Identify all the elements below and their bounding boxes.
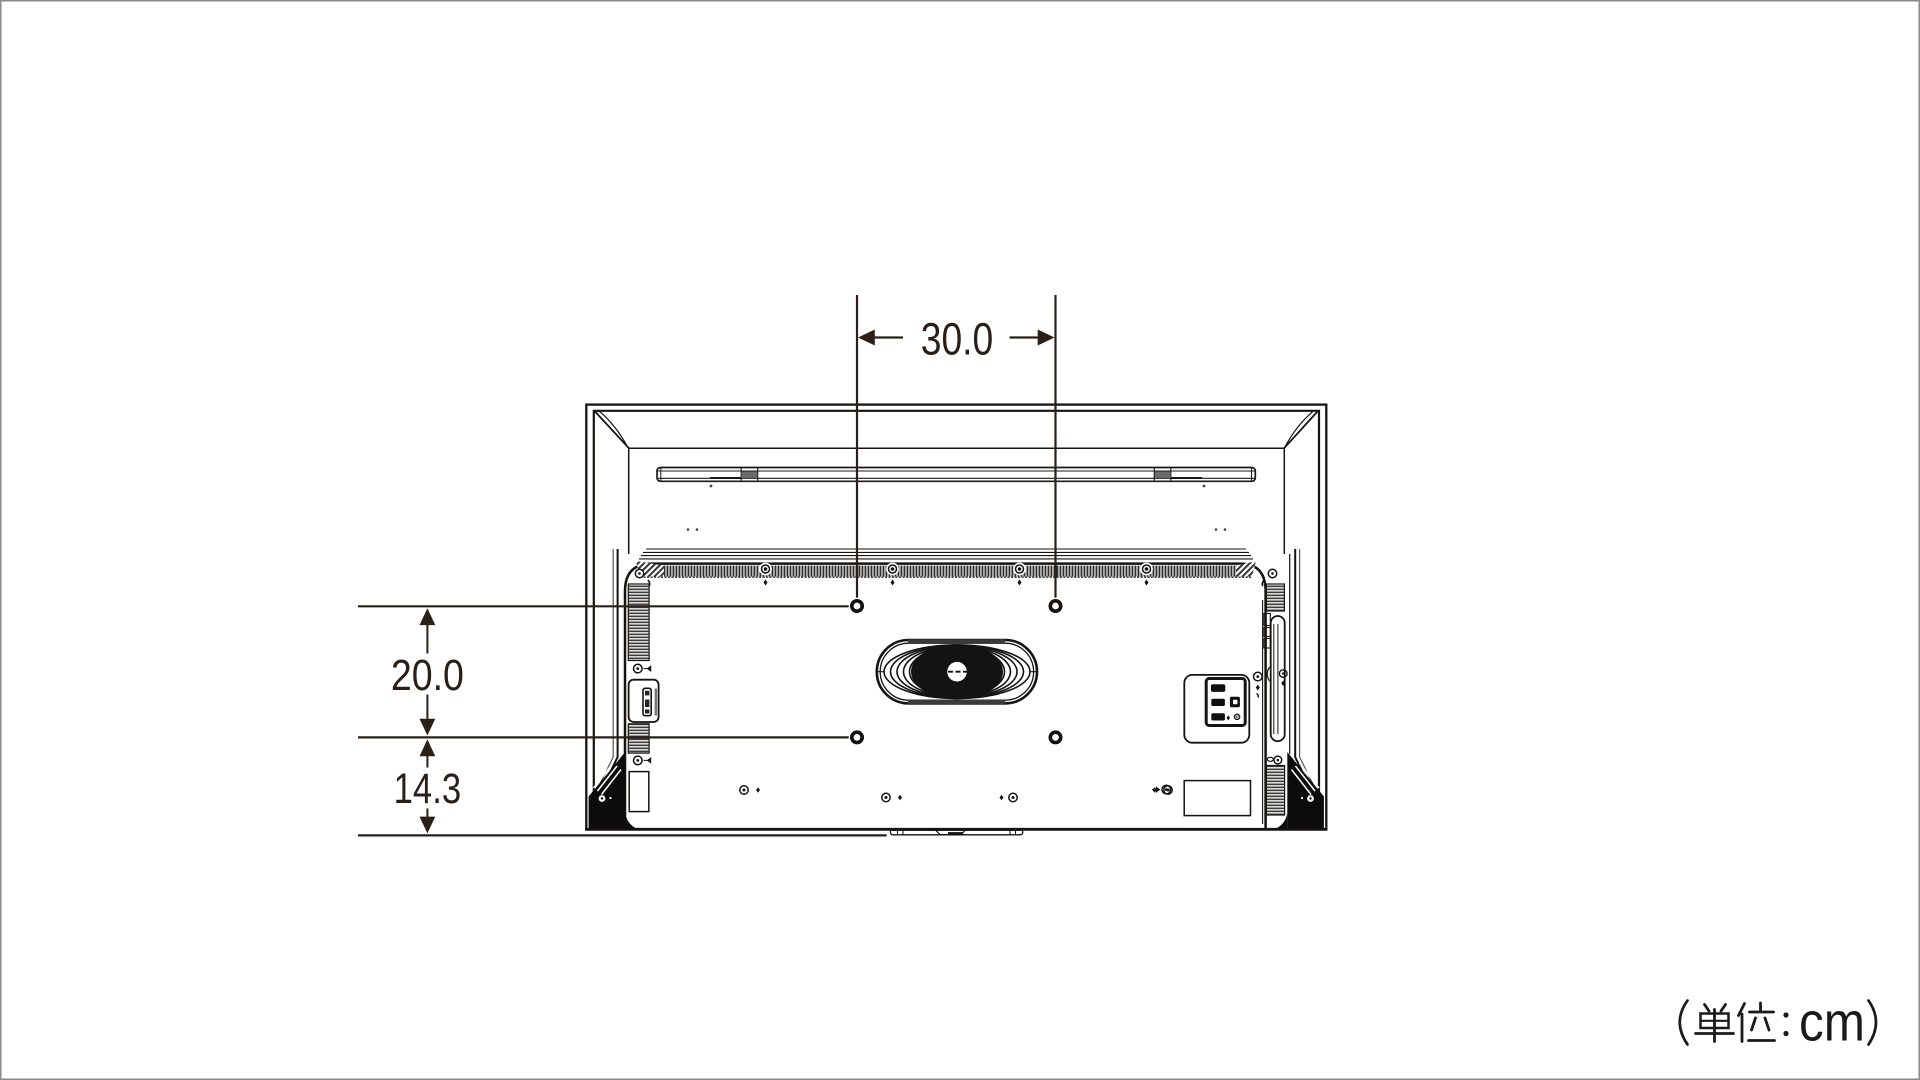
svg-text:14.3: 14.3 [394,766,462,813]
svg-text:20.0: 20.0 [391,652,464,700]
svg-text:30.0: 30.0 [921,313,994,364]
svg-text:cm: cm [1799,991,1865,1053]
